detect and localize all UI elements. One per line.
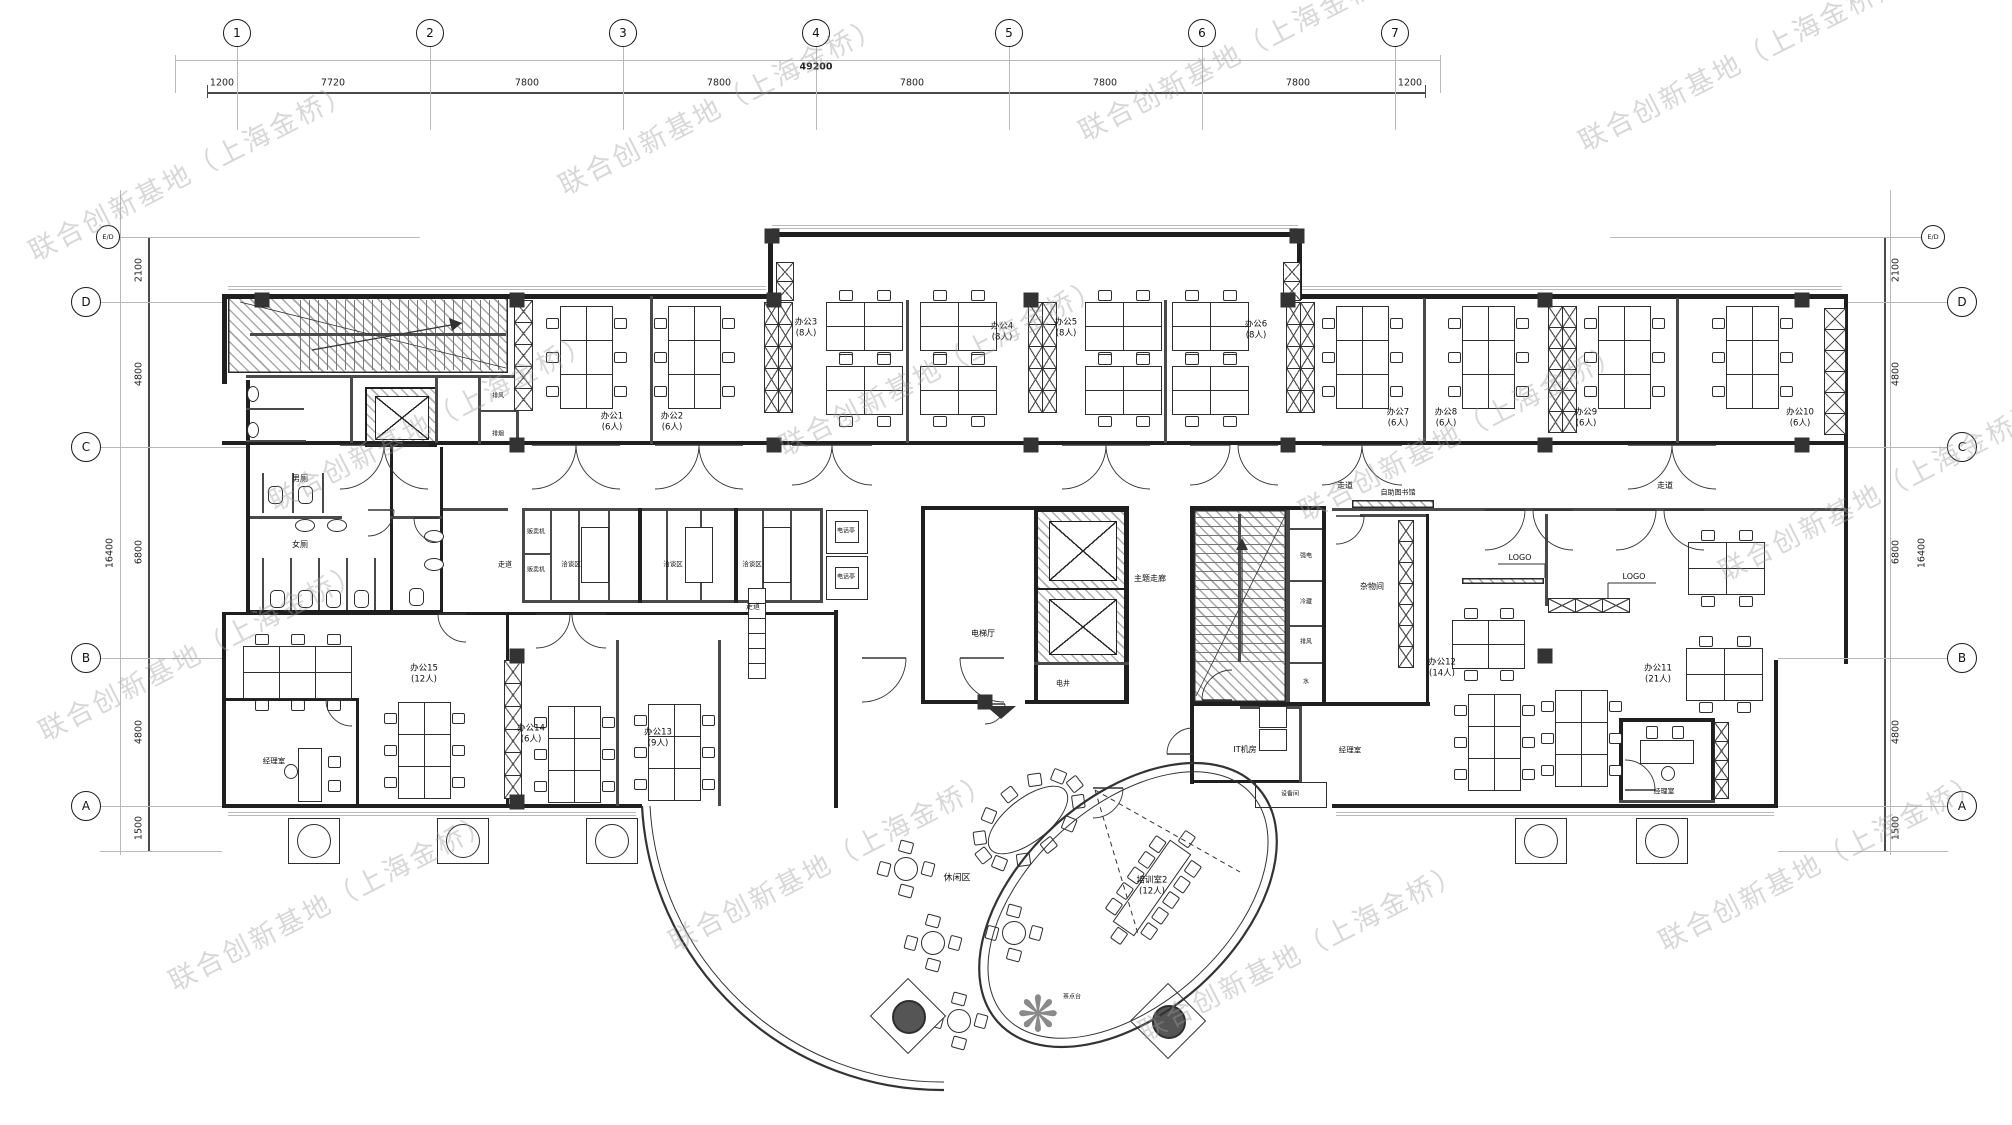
room-label: 强电 (1300, 552, 1312, 560)
dimension-text: 7800 (515, 78, 539, 89)
overall-dimension: 49200 (799, 62, 832, 73)
overall-dimension: 16400 (1917, 538, 1928, 568)
dimension-text: 7720 (321, 78, 345, 89)
room-label: 办公9 (6人) (1575, 407, 1597, 428)
room-label: 办公5 (8人) (1055, 317, 1077, 338)
room-label: 走道 (1337, 481, 1353, 491)
room-label: LOGO (1623, 572, 1646, 582)
room-label: 办公12 (14人) (1428, 657, 1456, 678)
dimension-text: 1500 (134, 816, 145, 840)
grid-column-bubble: 7 (1381, 19, 1409, 47)
grid-row-bubble: D (1947, 287, 1977, 317)
grid-row-bubble: E/D (96, 225, 120, 249)
room-label: 办公7 (6人) (1387, 407, 1409, 428)
grid-row-bubble: A (71, 791, 101, 821)
dimension-text: 4800 (1891, 362, 1902, 386)
plan-curve (414, 518, 438, 542)
training-room-wall (926, 708, 1331, 1103)
floorplan-canvas: 联合创新基地（上海金桥）联合创新基地（上海金桥）联合创新基地（上海金桥）联合创新… (0, 0, 2012, 1125)
room-label: 培训室2 (12人) (1137, 875, 1168, 896)
dimension-text: 2100 (1891, 258, 1902, 282)
dimension-text: 4800 (134, 362, 145, 386)
plan-curve (576, 445, 620, 489)
room-label: 电井 (1056, 680, 1070, 689)
room-label: 排烟 (492, 430, 504, 438)
plan-curve (1498, 564, 1545, 578)
plan-curve (862, 658, 906, 702)
grid-column-bubble: 4 (802, 19, 830, 47)
plan-curve (1238, 445, 1278, 485)
plan-curve (960, 658, 1004, 702)
dimension-text: 6800 (134, 540, 145, 564)
plan-curve (792, 445, 832, 485)
room-label: 洽谈区 (742, 560, 762, 568)
plan-curve (536, 614, 570, 648)
room-label: 茶点台 (1063, 993, 1081, 1001)
room-label: 办公4 (8人) (991, 321, 1013, 342)
room-label: 走道 (1657, 481, 1673, 491)
room-label: 经理室 (1339, 745, 1362, 754)
plan-curve (1190, 445, 1230, 485)
room-label: 办公8 (6人) (1435, 407, 1457, 428)
room-label: 主题走廊 (1134, 574, 1166, 584)
plan-curve (312, 323, 462, 350)
plan-curve (1625, 760, 1655, 790)
plan-curve (240, 302, 506, 368)
dimension-text: 7800 (707, 78, 731, 89)
plan-curve (532, 445, 576, 489)
room-label: 冷藏 (1300, 598, 1312, 606)
room-label: 电话亭 (837, 527, 855, 535)
room-label: IT机房 (1233, 745, 1256, 755)
room-label: 电话亭 (837, 573, 855, 581)
dimension-text: 7800 (1286, 78, 1310, 89)
room-label: 杂物间 (1360, 582, 1384, 592)
room-label: 休闲区 (943, 873, 970, 884)
grid-column-bubble: 2 (416, 19, 444, 47)
plan-curve (340, 445, 384, 489)
arrow-head (449, 318, 462, 331)
room-label: LOGO (1509, 553, 1532, 563)
plan-curve (642, 806, 944, 1090)
dimension-text: 1200 (210, 78, 234, 89)
arrow-head (986, 706, 1016, 719)
plan-curve (1485, 510, 1525, 550)
dimension-text: 2100 (134, 258, 145, 282)
room-label: 办公3 (8人) (795, 317, 817, 338)
plan-curve (326, 700, 352, 726)
plan-curve (1533, 510, 1573, 550)
room-label: 走道 (746, 603, 760, 612)
overall-dimension: 16400 (105, 538, 116, 568)
dimension-text: 7800 (900, 78, 924, 89)
dimension-text: 6800 (1891, 540, 1902, 564)
dimension-text: 4800 (1891, 720, 1902, 744)
plan-curve (655, 445, 699, 489)
arrow-head (1236, 538, 1248, 550)
grid-column-bubble: 5 (995, 19, 1023, 47)
room-label: 排风 (492, 392, 504, 400)
dimension-text: 7800 (1093, 78, 1117, 89)
room-label: 设备间 (1281, 790, 1299, 798)
plan-curve (1672, 445, 1716, 489)
grid-row-bubble: B (1947, 643, 1977, 673)
room-label: 自助图书馆 (1381, 489, 1416, 498)
dimension-text: 4800 (134, 720, 145, 744)
plan-curve (1322, 445, 1362, 485)
dimension-text: 1500 (1891, 816, 1902, 840)
plan-curve (438, 614, 466, 642)
room-label: 排风 (1300, 638, 1312, 646)
room-label: 办公1 (6人) (601, 411, 623, 432)
room-label: 女厕 (292, 540, 308, 550)
room-label: 办公15 (12人) (410, 663, 438, 684)
room-label: 洽谈区 (663, 560, 683, 568)
dimension-text: 1200 (1398, 78, 1422, 89)
room-label: 办公2 (6人) (661, 411, 683, 432)
room-label: 贩卖机 (527, 528, 545, 536)
room-label: 办公6 (8人) (1245, 319, 1267, 340)
grid-row-bubble: B (71, 643, 101, 673)
curves-overlay: ❋ (0, 0, 2012, 1125)
plan-curve (1095, 790, 1138, 934)
grid-row-bubble: C (71, 432, 101, 462)
grid-row-bubble: D (71, 287, 101, 317)
plant-icon: ❋ (1017, 986, 1059, 1044)
plan-curve (1062, 445, 1106, 489)
plan-curve (1106, 445, 1150, 489)
plan-curve (1095, 790, 1240, 872)
room-label: 贩卖机 (527, 566, 545, 574)
plan-curve (368, 510, 394, 536)
room-label: 经理室 (1654, 788, 1675, 797)
plan-curve (650, 806, 944, 1082)
plan-curve (1167, 728, 1193, 754)
grid-row-bubble: C (1947, 432, 1977, 462)
room-label: 电梯厅 (971, 629, 995, 639)
grid-column-bubble: 6 (1188, 19, 1216, 47)
room-label: 经理室 (263, 756, 286, 765)
room-label: 办公13 (9人) (644, 727, 672, 748)
room-label: 办公14 (6人) (517, 723, 545, 744)
plan-curve (832, 445, 872, 485)
grid-row-bubble: A (1947, 791, 1977, 821)
plan-curve (1336, 516, 1364, 544)
plan-curve (1616, 510, 1656, 550)
grid-row-bubble: E/D (1921, 225, 1945, 249)
plan-curve (384, 445, 428, 489)
room-label: 男厕 (292, 474, 308, 484)
room-label: 办公10 (6人) (1786, 407, 1814, 428)
plan-curve (572, 614, 606, 648)
plan-curve (699, 445, 743, 489)
grid-column-bubble: 1 (223, 19, 251, 47)
room-label: 水 (1303, 678, 1309, 686)
room-label: 走道 (498, 561, 512, 570)
room-label: 办公11 (21人) (1644, 663, 1672, 684)
room-label: 洽谈区 (561, 560, 581, 568)
plan-curve (1664, 510, 1704, 550)
plan-curve (1362, 445, 1402, 485)
grid-column-bubble: 3 (609, 19, 637, 47)
